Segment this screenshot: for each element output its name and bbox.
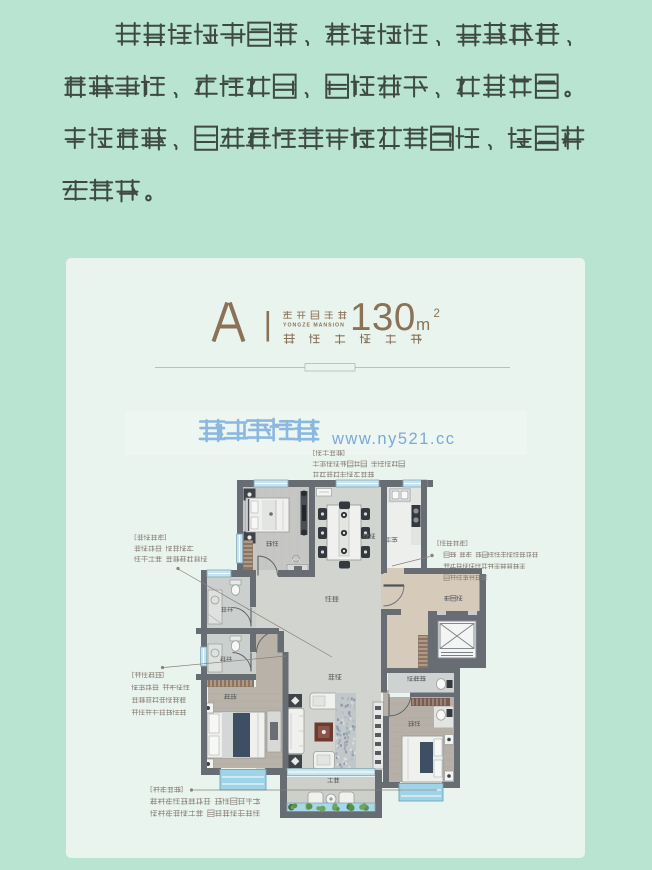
svg-text:YONGZE MANSION: YONGZE MANSION <box>283 323 345 329</box>
svg-text:www.ny521.cc: www.ny521.cc <box>331 430 455 448</box>
svg-text:m: m <box>416 315 430 334</box>
svg-text:130: 130 <box>350 296 416 339</box>
svg-text:2: 2 <box>434 308 440 320</box>
